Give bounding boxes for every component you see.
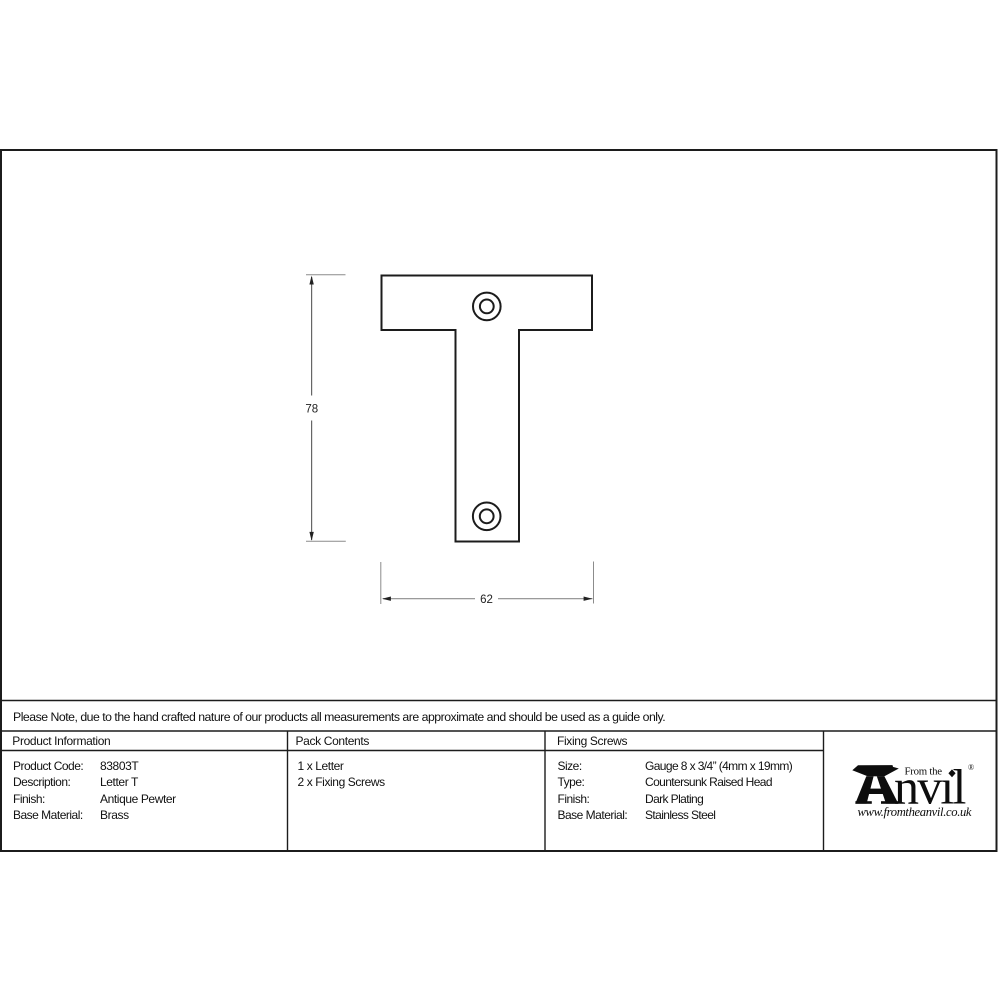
svg-text:62: 62	[480, 594, 493, 606]
svg-text:®: ®	[968, 763, 974, 772]
svg-text:www.fromtheanvil.co.uk: www.fromtheanvil.co.uk	[858, 805, 972, 819]
svg-text:78: 78	[305, 403, 318, 415]
svg-text:From the: From the	[905, 766, 943, 778]
